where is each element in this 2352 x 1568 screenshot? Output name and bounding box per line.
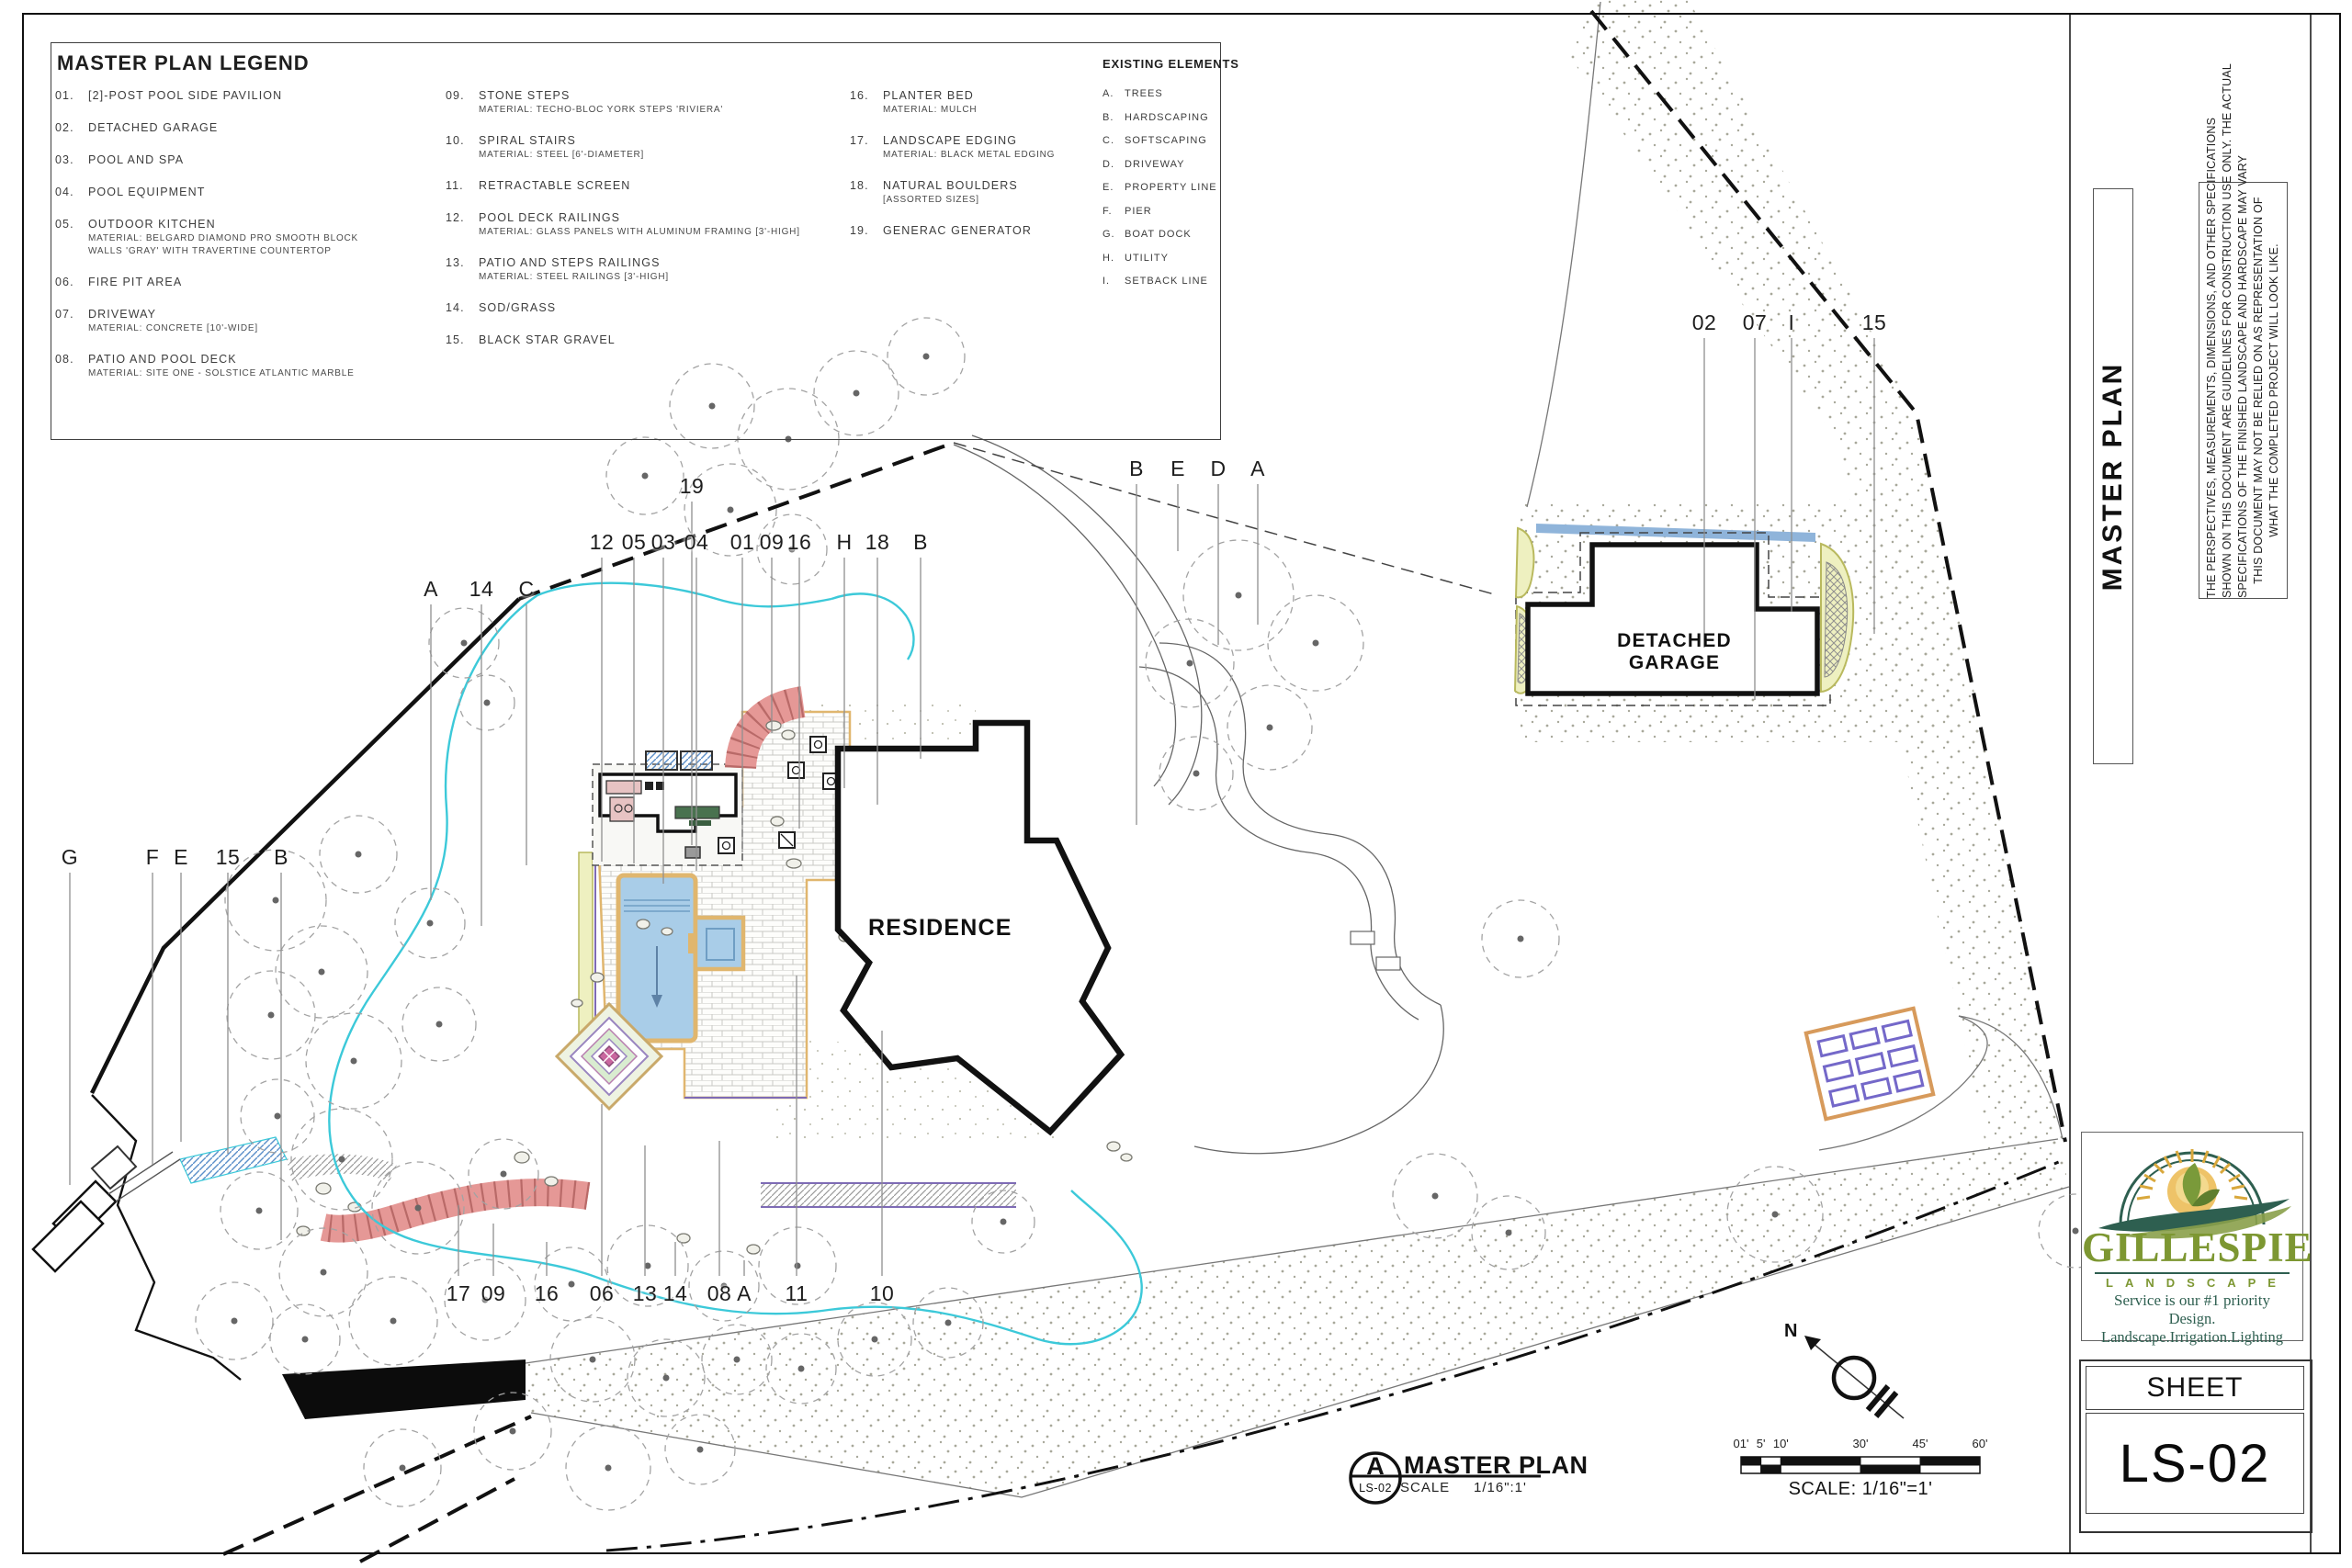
tree-center-dot (484, 700, 491, 706)
tree-center-dot (302, 1337, 309, 1343)
company-logo: GILLESPIE LANDSCAPE Service is our #1 pr… (2081, 1132, 2303, 1341)
callout-label: C (504, 577, 548, 602)
legend-item: 11.RETRACTABLE SCREEN (446, 179, 800, 192)
existing-elements-title: EXISTING ELEMENTS (1102, 57, 1239, 71)
plan-sheet: MASTER PLAN LEGEND 01.[2]-POST POOL SIDE… (0, 0, 2352, 1568)
callout-label: G (48, 845, 92, 870)
planter-grid (1806, 1009, 1934, 1120)
tree-center-dot (1518, 936, 1524, 942)
legend-item-material: [ASSORTED SIZES] (883, 195, 1055, 205)
legend-item: 04.POOL EQUIPMENT (55, 186, 358, 198)
tree-center-dot (872, 1337, 878, 1343)
legend-item: 13.PATIO AND STEPS RAILINGSMATERIAL: STE… (446, 256, 800, 282)
legend-item: 01.[2]-POST POOL SIDE PAVILION (55, 89, 358, 102)
disclaimer-line: WHAT THE COMPLETED PROJECT WILL LOOK LIK… (2267, 183, 2282, 598)
existing-element-item: E.PROPERTY LINE (1102, 182, 1217, 193)
scale-bar-caption: SCALE: 1/16"=1' (1769, 1479, 1952, 1500)
legend-item: 19.GENERAC GENERATOR (850, 224, 1055, 237)
tree-center-dot (427, 920, 434, 927)
legend-item: 08.PATIO AND POOL DECKMATERIAL: SITE ONE… (55, 353, 358, 378)
legend-item: 07.DRIVEWAYMATERIAL: CONCRETE [10'-WIDE] (55, 308, 358, 333)
legend-title: MASTER PLAN LEGEND (57, 51, 310, 75)
compass-icon (1804, 1336, 1904, 1418)
tree-center-dot (1193, 771, 1200, 777)
tree-center-dot (356, 852, 362, 858)
existing-element-item: I.SETBACK LINE (1102, 276, 1217, 287)
legend-item: 15.BLACK STAR GRAVEL (446, 333, 800, 346)
existing-element-item: G.BOAT DOCK (1102, 229, 1217, 240)
tree-center-dot (642, 473, 649, 479)
tree-center-dot (415, 1205, 422, 1212)
tree-center-dot (1772, 1212, 1779, 1218)
legend-column-1: 01.[2]-POST POOL SIDE PAVILION02.DETACHE… (55, 89, 358, 398)
legend-item-material: MATERIAL: TECHO-BLOC YORK STEPS 'RIVIERA… (479, 105, 800, 115)
vertical-sheet-title: MASTER PLAN (2098, 189, 2129, 763)
tree-center-dot (945, 1320, 952, 1326)
tree-center-dot (728, 507, 734, 513)
callout-label: 16 (777, 530, 821, 555)
logo-tagline-1: Service is our #1 priority (2082, 1292, 2302, 1310)
sheet-number: LS-02 (2086, 1413, 2304, 1514)
legend-item-material: MATERIAL: BLACK METAL EDGING (883, 150, 1055, 160)
scale-bar (1741, 1457, 1980, 1473)
legend-item-material: MATERIAL: CONCRETE [10'-WIDE] (88, 323, 358, 333)
legend-item-material: MATERIAL: MULCH (883, 105, 1055, 115)
callout-label: 11 (775, 1281, 819, 1306)
tree-center-dot (321, 1269, 327, 1276)
asphalt-strip (282, 1359, 526, 1419)
north-label: N (1784, 1321, 1797, 1342)
tree-center-dot (590, 1357, 596, 1363)
legend-item: 02.DETACHED GARAGE (55, 121, 358, 134)
legend-item: 10.SPIRAL STAIRSMATERIAL: STEEL [6'-DIAM… (446, 134, 800, 160)
drawing-title: MASTER PLAN (1404, 1451, 1589, 1480)
callout-label: 16 (525, 1281, 569, 1306)
tree-center-dot (798, 1366, 805, 1372)
existing-element-item: A.TREES (1102, 88, 1217, 99)
tree-center-dot (436, 1021, 443, 1028)
callout-label: A (1236, 457, 1280, 481)
callout-label: 15 (206, 845, 250, 870)
legend-item: 03.POOL AND SPA (55, 153, 358, 166)
tree-center-dot (273, 897, 279, 904)
logo-name: GILLESPIE (2082, 1226, 2302, 1269)
scale-bar-tick: 30' (1848, 1437, 1873, 1450)
detail-sheet-ref: LS-02 (1353, 1482, 1397, 1495)
residence-label: RESIDENCE (868, 915, 992, 942)
drawing-scale-value: 1/16":1' (1474, 1480, 1527, 1495)
disclaimer-line: THE PERSPECTIVES, MEASUREMENTS, DIMENSIO… (2204, 183, 2220, 598)
callout-label: 04 (674, 530, 718, 555)
garage-label: DETACHED GARAGE (1594, 630, 1755, 674)
tree-center-dot (268, 1012, 275, 1019)
callout-label: 02 (1682, 310, 1726, 335)
callout-label: 09 (471, 1281, 515, 1306)
legend-column-3: 16.PLANTER BEDMATERIAL: MULCH17.LANDSCAP… (850, 89, 1055, 256)
disclaimer-line: SHOWN ON THIS DOCUMENT ARE GUIDELINES FO… (2220, 183, 2235, 598)
tree-center-dot (1432, 1193, 1439, 1200)
legend-column-2: 09.STONE STEPSMATERIAL: TECHO-BLOC YORK … (446, 89, 800, 366)
scale-bar-tick: 45' (1907, 1437, 1933, 1450)
legend-item: 16.PLANTER BEDMATERIAL: MULCH (850, 89, 1055, 115)
logo-subtitle: LANDSCAPE (2091, 1276, 2302, 1290)
logo-rule (2095, 1272, 2290, 1274)
callout-label: 14 (459, 577, 503, 602)
tree-center-dot (275, 1113, 281, 1120)
tree-center-dot (256, 1208, 263, 1214)
legend-item-material: MATERIAL: STEEL RAILINGS [3'-HIGH] (479, 272, 800, 282)
tree-center-dot (1506, 1230, 1512, 1236)
legend-item-material: MATERIAL: BELGARD DIAMOND PRO SMOOTH BLO… (88, 233, 358, 243)
disclaimer-box: THE PERSPECTIVES, MEASUREMENTS, DIMENSIO… (2199, 182, 2288, 599)
sheet-label: SHEET (2086, 1366, 2304, 1410)
tree-center-dot (2073, 1228, 2079, 1235)
existing-element-item: B.HARDSCAPING (1102, 112, 1217, 123)
callout-label: B (1114, 457, 1159, 481)
legend-item-material: MATERIAL: SITE ONE - SOLSTICE ATLANTIC M… (88, 368, 358, 378)
callout-label: 06 (580, 1281, 624, 1306)
disclaimer-line: SPECIFICATIONS OF THE FINISHED LANDSCAPE… (2235, 183, 2251, 598)
tree-center-dot (400, 1465, 406, 1472)
legend-item: 18.NATURAL BOULDERS[ASSORTED SIZES] (850, 179, 1055, 205)
generator (685, 847, 700, 858)
callout-label: 15 (1852, 310, 1896, 335)
legend-item: 17.LANDSCAPE EDGINGMATERIAL: BLACK METAL… (850, 134, 1055, 160)
drawing-scale-label: SCALE (1400, 1480, 1450, 1495)
walkway (761, 1183, 1016, 1207)
existing-element-item: C.SOFTSCAPING (1102, 135, 1217, 146)
tree-center-dot (569, 1281, 575, 1288)
tree-center-dot (734, 1357, 741, 1363)
legend-item: 12.POOL DECK RAILINGSMATERIAL: GLASS PAN… (446, 211, 800, 237)
logo-tagline-2: Design. Landscape.Irrigation.Lighting (2082, 1310, 2302, 1347)
tree-center-dot (461, 640, 468, 647)
existing-elements-list: A.TREESB.HARDSCAPINGC.SOFTSCAPINGD.DRIVE… (1102, 88, 1217, 299)
legend-item-material: MATERIAL: GLASS PANELS WITH ALUMINUM FRA… (479, 227, 800, 237)
legend-item-material: MATERIAL: STEEL [6'-DIAMETER] (479, 150, 800, 160)
callout-label: B (899, 530, 943, 555)
callout-label: E (1156, 457, 1200, 481)
disclaimer-line: THIS DOCUMENT MAY NOT BE RELIED ON AS RE… (2251, 183, 2267, 598)
tree-center-dot (1001, 1219, 1007, 1225)
callout-label: 10 (860, 1281, 904, 1306)
callout-label: A (409, 577, 453, 602)
legend-item: 14.SOD/GRASS (446, 301, 800, 314)
tree-center-dot (390, 1318, 397, 1325)
tree-center-dot (1187, 660, 1193, 667)
planter-strip (579, 852, 593, 1049)
callout-label: 18 (855, 530, 899, 555)
detail-letter: A (1353, 1452, 1397, 1481)
tree-center-dot (1236, 592, 1242, 599)
tree-center-dot (1313, 640, 1319, 647)
tree-center-dot (510, 1428, 516, 1435)
existing-element-item: H.UTILITY (1102, 253, 1217, 264)
scale-bar-tick: 60' (1967, 1437, 1993, 1450)
legend-item: 06.FIRE PIT AREA (55, 276, 358, 288)
callout-label: D (1196, 457, 1240, 481)
tree-center-dot (1267, 725, 1273, 731)
tree-center-dot (663, 1375, 670, 1382)
callout-label: E (159, 845, 203, 870)
tree-center-dot (232, 1318, 238, 1325)
tree-center-dot (605, 1465, 612, 1472)
vertical-title-box: MASTER PLAN (2093, 188, 2133, 764)
tree-center-dot (795, 1263, 801, 1269)
callout-label: 19 (670, 474, 714, 499)
legend-item-material: WALLS 'GRAY' WITH TRAVERTINE COUNTERTOP (88, 246, 358, 256)
tree-center-dot (697, 1447, 704, 1453)
scale-bar-tick: 10' (1768, 1437, 1793, 1450)
callout-label: B (259, 845, 303, 870)
existing-element-item: F.PIER (1102, 206, 1217, 217)
callout-label: I (1770, 310, 1814, 335)
tree-center-dot (339, 1156, 345, 1163)
legend-item: 05.OUTDOOR KITCHENMATERIAL: BELGARD DIAM… (55, 218, 358, 256)
callout-label: 14 (653, 1281, 697, 1306)
tree-center-dot (501, 1171, 507, 1178)
callout-label: A (722, 1281, 766, 1306)
existing-element-item: D.DRIVEWAY (1102, 159, 1217, 170)
tree-center-dot (351, 1058, 357, 1065)
legend-item: 09.STONE STEPSMATERIAL: TECHO-BLOC YORK … (446, 89, 800, 115)
tree-center-dot (319, 969, 325, 976)
